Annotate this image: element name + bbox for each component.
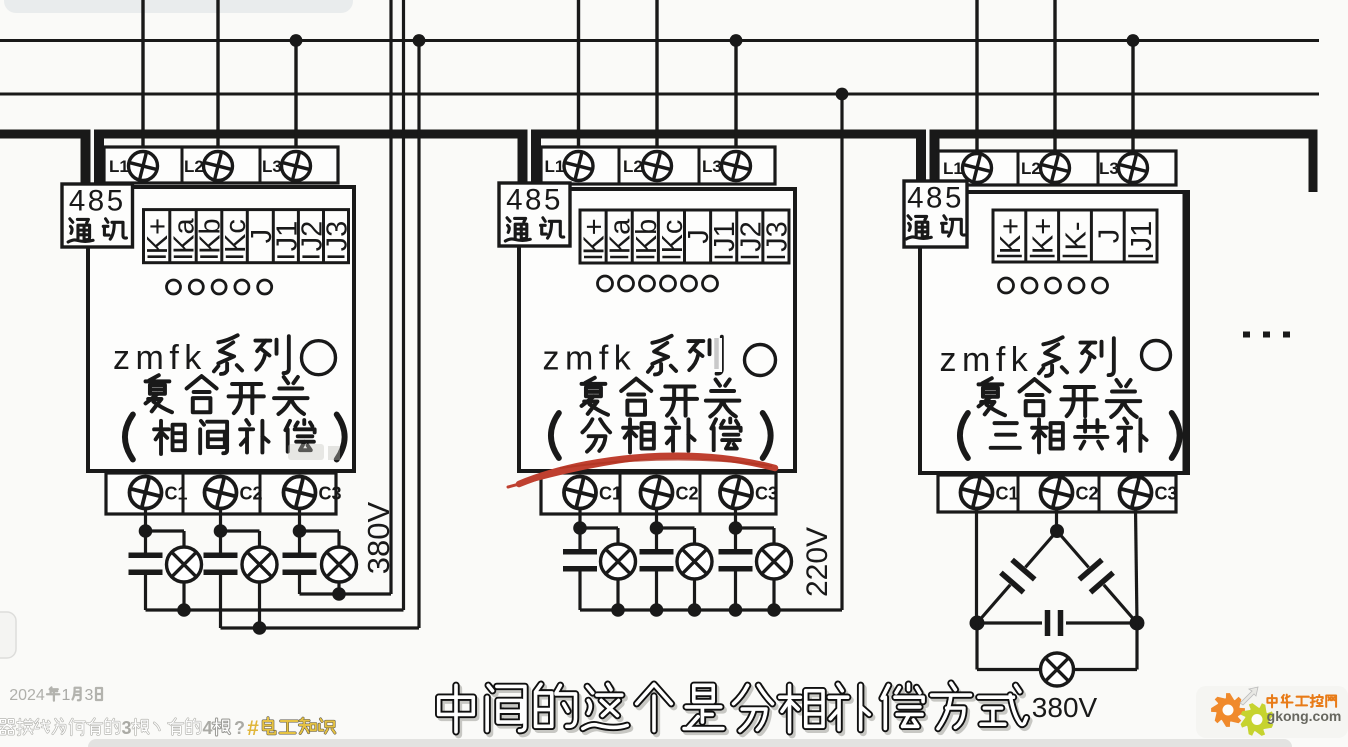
svg-text:C3: C3 (755, 484, 778, 504)
svg-text:C3: C3 (319, 484, 342, 504)
svg-text:C1: C1 (599, 484, 622, 504)
svg-text:485: 485 (907, 182, 964, 215)
svg-text:L2: L2 (1021, 159, 1041, 178)
svg-text:C2: C2 (240, 484, 263, 504)
svg-text:3: 3 (121, 718, 131, 738)
svg-text:gkong.com: gkong.com (1267, 708, 1342, 724)
svg-text:L3: L3 (702, 157, 722, 176)
svg-text:K+: K+ (1028, 218, 1060, 254)
svg-text:L1: L1 (943, 159, 963, 178)
svg-text:zmfk: zmfk (543, 340, 637, 378)
svg-text:zmfk: zmfk (940, 341, 1034, 379)
svg-text:L1: L1 (545, 157, 565, 176)
svg-text:1: 1 (62, 687, 71, 704)
svg-text:2024: 2024 (9, 687, 45, 704)
svg-text:?: ? (234, 718, 245, 738)
svg-text:C1: C1 (165, 484, 188, 504)
svg-text:C3: C3 (1155, 484, 1178, 504)
svg-text:J3: J3 (322, 221, 354, 252)
svg-text:J1: J1 (1126, 221, 1158, 252)
svg-text:220V: 220V (801, 527, 834, 597)
svg-text:J: J (1093, 229, 1125, 244)
svg-text:380V: 380V (1032, 692, 1098, 723)
svg-text:#: # (247, 717, 259, 740)
svg-text:L2: L2 (623, 157, 643, 176)
svg-text:4: 4 (202, 718, 212, 738)
svg-text:zmfk: zmfk (113, 339, 207, 377)
svg-text:L1: L1 (109, 157, 129, 176)
svg-text:3: 3 (85, 687, 94, 704)
svg-text:L3: L3 (1099, 159, 1119, 178)
svg-text:C2: C2 (1076, 484, 1099, 504)
svg-text:C2: C2 (676, 484, 699, 504)
svg-text:380V: 380V (361, 501, 396, 574)
svg-text:C1: C1 (996, 484, 1019, 504)
svg-text:L2: L2 (184, 157, 204, 176)
svg-text:K-: K- (1061, 222, 1093, 251)
svg-text:K+: K+ (995, 218, 1027, 254)
svg-text:J3: J3 (761, 221, 793, 252)
svg-text:485: 485 (506, 184, 563, 217)
svg-text:485: 485 (69, 185, 126, 218)
svg-text:L3: L3 (262, 157, 282, 176)
